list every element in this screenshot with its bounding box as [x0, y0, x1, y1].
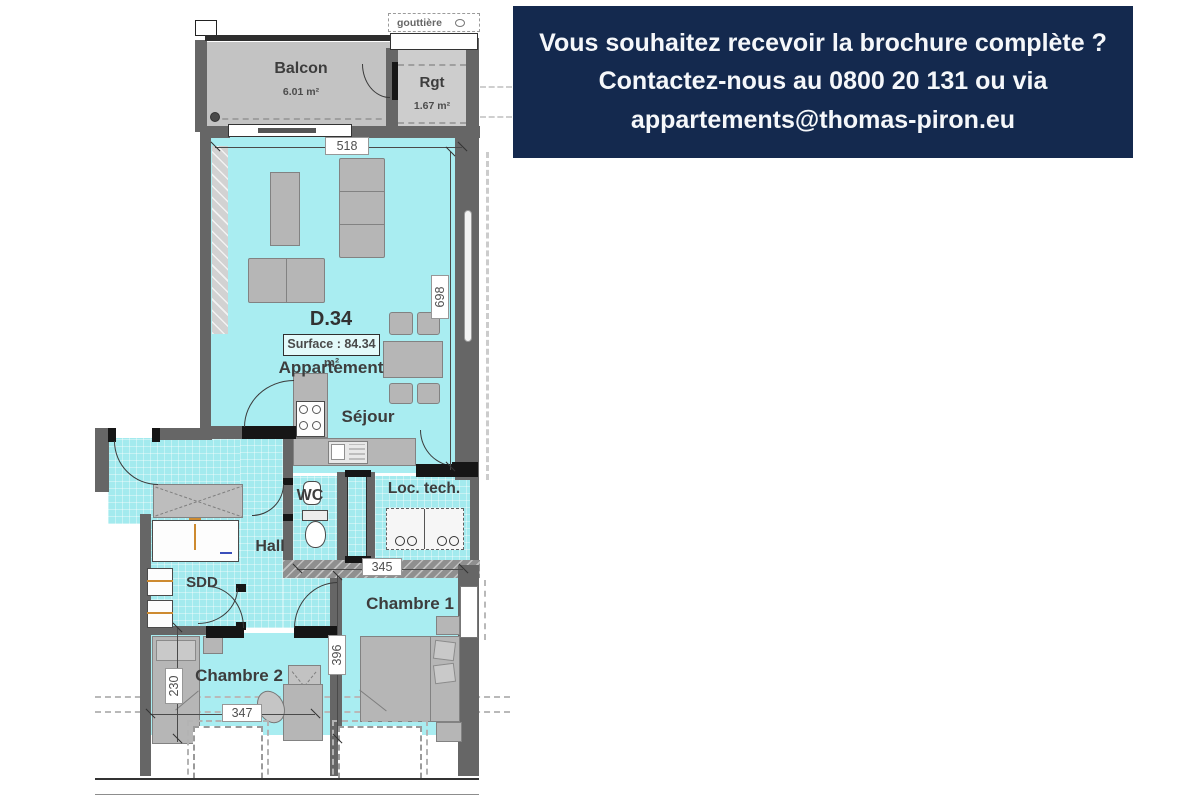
section-dash-stub	[480, 86, 512, 88]
stove-burner	[312, 421, 321, 430]
storage-right-wall	[466, 38, 479, 132]
machine-knob	[395, 536, 405, 546]
bedroom1-window	[460, 586, 478, 638]
entrance-door-jamb	[108, 428, 116, 442]
unit-surface-box: Surface : 84.34 m²	[283, 334, 380, 356]
contact-banner: Vous souhaitez recevoir la brochure comp…	[513, 6, 1133, 158]
dining-chair	[389, 312, 413, 335]
living-bottom-wall	[210, 426, 242, 439]
shower-valve-mark	[189, 518, 201, 520]
shower-level-mark	[220, 552, 232, 554]
bed-pillow	[433, 663, 456, 684]
stove-burner	[312, 405, 321, 414]
gutter-label: gouttière	[389, 17, 442, 29]
storage-dash	[398, 64, 466, 66]
loveseat-cushion-line	[286, 259, 287, 302]
desk	[283, 684, 323, 741]
bedside-table	[203, 636, 223, 654]
dining-table	[383, 341, 443, 378]
balcony-area-label: 6.01 m²	[278, 86, 324, 98]
sliding-window-panel	[258, 128, 316, 133]
unit-type-label: Appartement	[271, 358, 391, 378]
storage-label: Rgt	[415, 74, 449, 91]
dim-label-518: 518	[325, 137, 369, 155]
bedroom2-label: Chambre 2	[194, 666, 284, 686]
entrance-door-jamb	[152, 428, 160, 442]
living-hall-door-sill	[242, 426, 296, 439]
toilet-tank	[302, 510, 328, 521]
nightstand	[436, 722, 462, 742]
balcony-railing	[205, 35, 399, 41]
machine-knob	[449, 536, 459, 546]
hall-corridor-floor	[240, 438, 285, 628]
duct-floor	[347, 476, 367, 560]
machine-knob	[407, 536, 417, 546]
bed-headboard-line	[430, 637, 431, 721]
wc-label: WC	[292, 487, 328, 505]
stove-burner	[299, 421, 308, 430]
hall-label: Hall	[248, 538, 292, 556]
vanity-sink	[147, 600, 173, 628]
vanity-sink	[147, 568, 173, 596]
unit-code-label: D.34	[301, 308, 361, 331]
living-left-hatch-strip	[212, 146, 228, 334]
dim-label-698: 698	[431, 275, 449, 319]
storage-dash	[398, 122, 466, 124]
banner-line-3: appartements@thomas-piron.eu	[631, 105, 1015, 136]
dim-line-698	[450, 152, 451, 470]
balcony-edge-dash	[212, 118, 392, 120]
banner-line-1: Vous souhaitez recevoir la brochure comp…	[539, 28, 1107, 59]
wc-door-jamb	[283, 478, 293, 485]
dim-label-230: 230	[165, 668, 183, 704]
wc-door-jamb	[283, 514, 293, 521]
nightstand	[436, 616, 460, 635]
gutter-drain-icon	[455, 19, 465, 27]
bedroom2-left-wall	[140, 628, 151, 776]
kitchen-sink-basin	[331, 444, 345, 460]
storage-area-label: 1.67 m²	[409, 100, 455, 112]
tech-room-label: Loc. tech.	[383, 480, 465, 498]
machine-knob	[437, 536, 447, 546]
duct-right-wall	[367, 472, 375, 564]
living-corner-jamb	[452, 462, 478, 477]
balcony-storage-door-leaf	[392, 62, 398, 100]
section-dash-stub	[480, 116, 512, 118]
shower-drain-mark	[194, 524, 196, 550]
living-left-wall	[200, 133, 211, 435]
sofa-cushion-line	[340, 224, 384, 225]
kitchen-sink-drainer	[349, 444, 365, 460]
hall-wardrobe	[153, 484, 243, 518]
gutter-line-dash	[486, 152, 489, 480]
sideboard	[270, 172, 300, 246]
sofa-cushion-line	[340, 191, 384, 192]
banner-line-2: Contactez-nous au 0800 20 131 ou via	[599, 66, 1048, 97]
hall-top-wall-mid	[156, 428, 212, 440]
machine-divider	[424, 509, 425, 549]
right-wall-window-shutter	[464, 210, 472, 342]
gutter-annotation-box: gouttière	[388, 13, 480, 32]
balcony-drain-icon	[210, 112, 220, 122]
tech-room-right-wall	[470, 476, 479, 566]
stove-burner	[299, 405, 308, 414]
bedroom1-label: Chambre 1	[366, 594, 454, 614]
living-label: Séjour	[337, 407, 399, 427]
wc-right-wall	[337, 472, 347, 564]
vanity-sink-tap	[147, 612, 173, 614]
vanity-sink-tap	[147, 580, 173, 582]
floorplan-sheet: 518 698 345 396 230 347 gouttière Balcon…	[0, 0, 1200, 800]
window-outside-dash	[484, 580, 486, 640]
storage-top-band	[390, 33, 478, 50]
dim-label-396: 396	[328, 635, 346, 675]
bed-pillow	[433, 640, 456, 661]
balcony-left-wall	[195, 40, 207, 132]
dim-label-347: 347	[222, 704, 262, 722]
facade-bottom-strip	[95, 778, 479, 795]
duct-top-bar	[345, 470, 371, 477]
roof-step-outline	[195, 20, 217, 36]
single-bed-pillow	[156, 640, 196, 661]
sdd-label: SDD	[180, 574, 224, 591]
balcony-label: Balcon	[268, 60, 334, 78]
toilet-bowl	[305, 521, 326, 548]
entry-outer-wall	[95, 428, 109, 492]
dim-label-345: 345	[362, 558, 402, 576]
sofa	[339, 158, 385, 258]
dining-chair	[389, 383, 413, 404]
dining-chair	[417, 383, 440, 404]
balcony-floor	[207, 42, 395, 128]
